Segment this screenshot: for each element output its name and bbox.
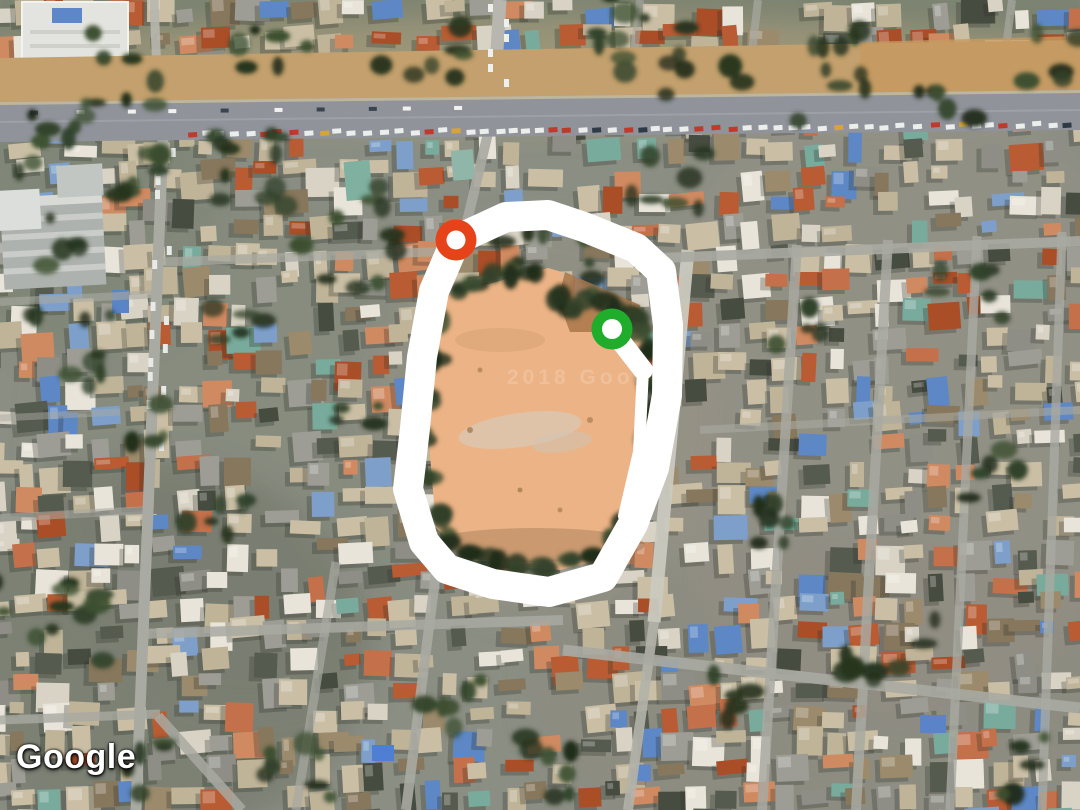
- red-marker-center: [447, 231, 466, 250]
- map-viewport[interactable]: 2018 Google Google: [0, 0, 1080, 810]
- satellite-imagery[interactable]: 2018 Google: [0, 0, 1080, 810]
- green-marker-center: [602, 319, 622, 339]
- google-logo[interactable]: Google: [16, 738, 136, 777]
